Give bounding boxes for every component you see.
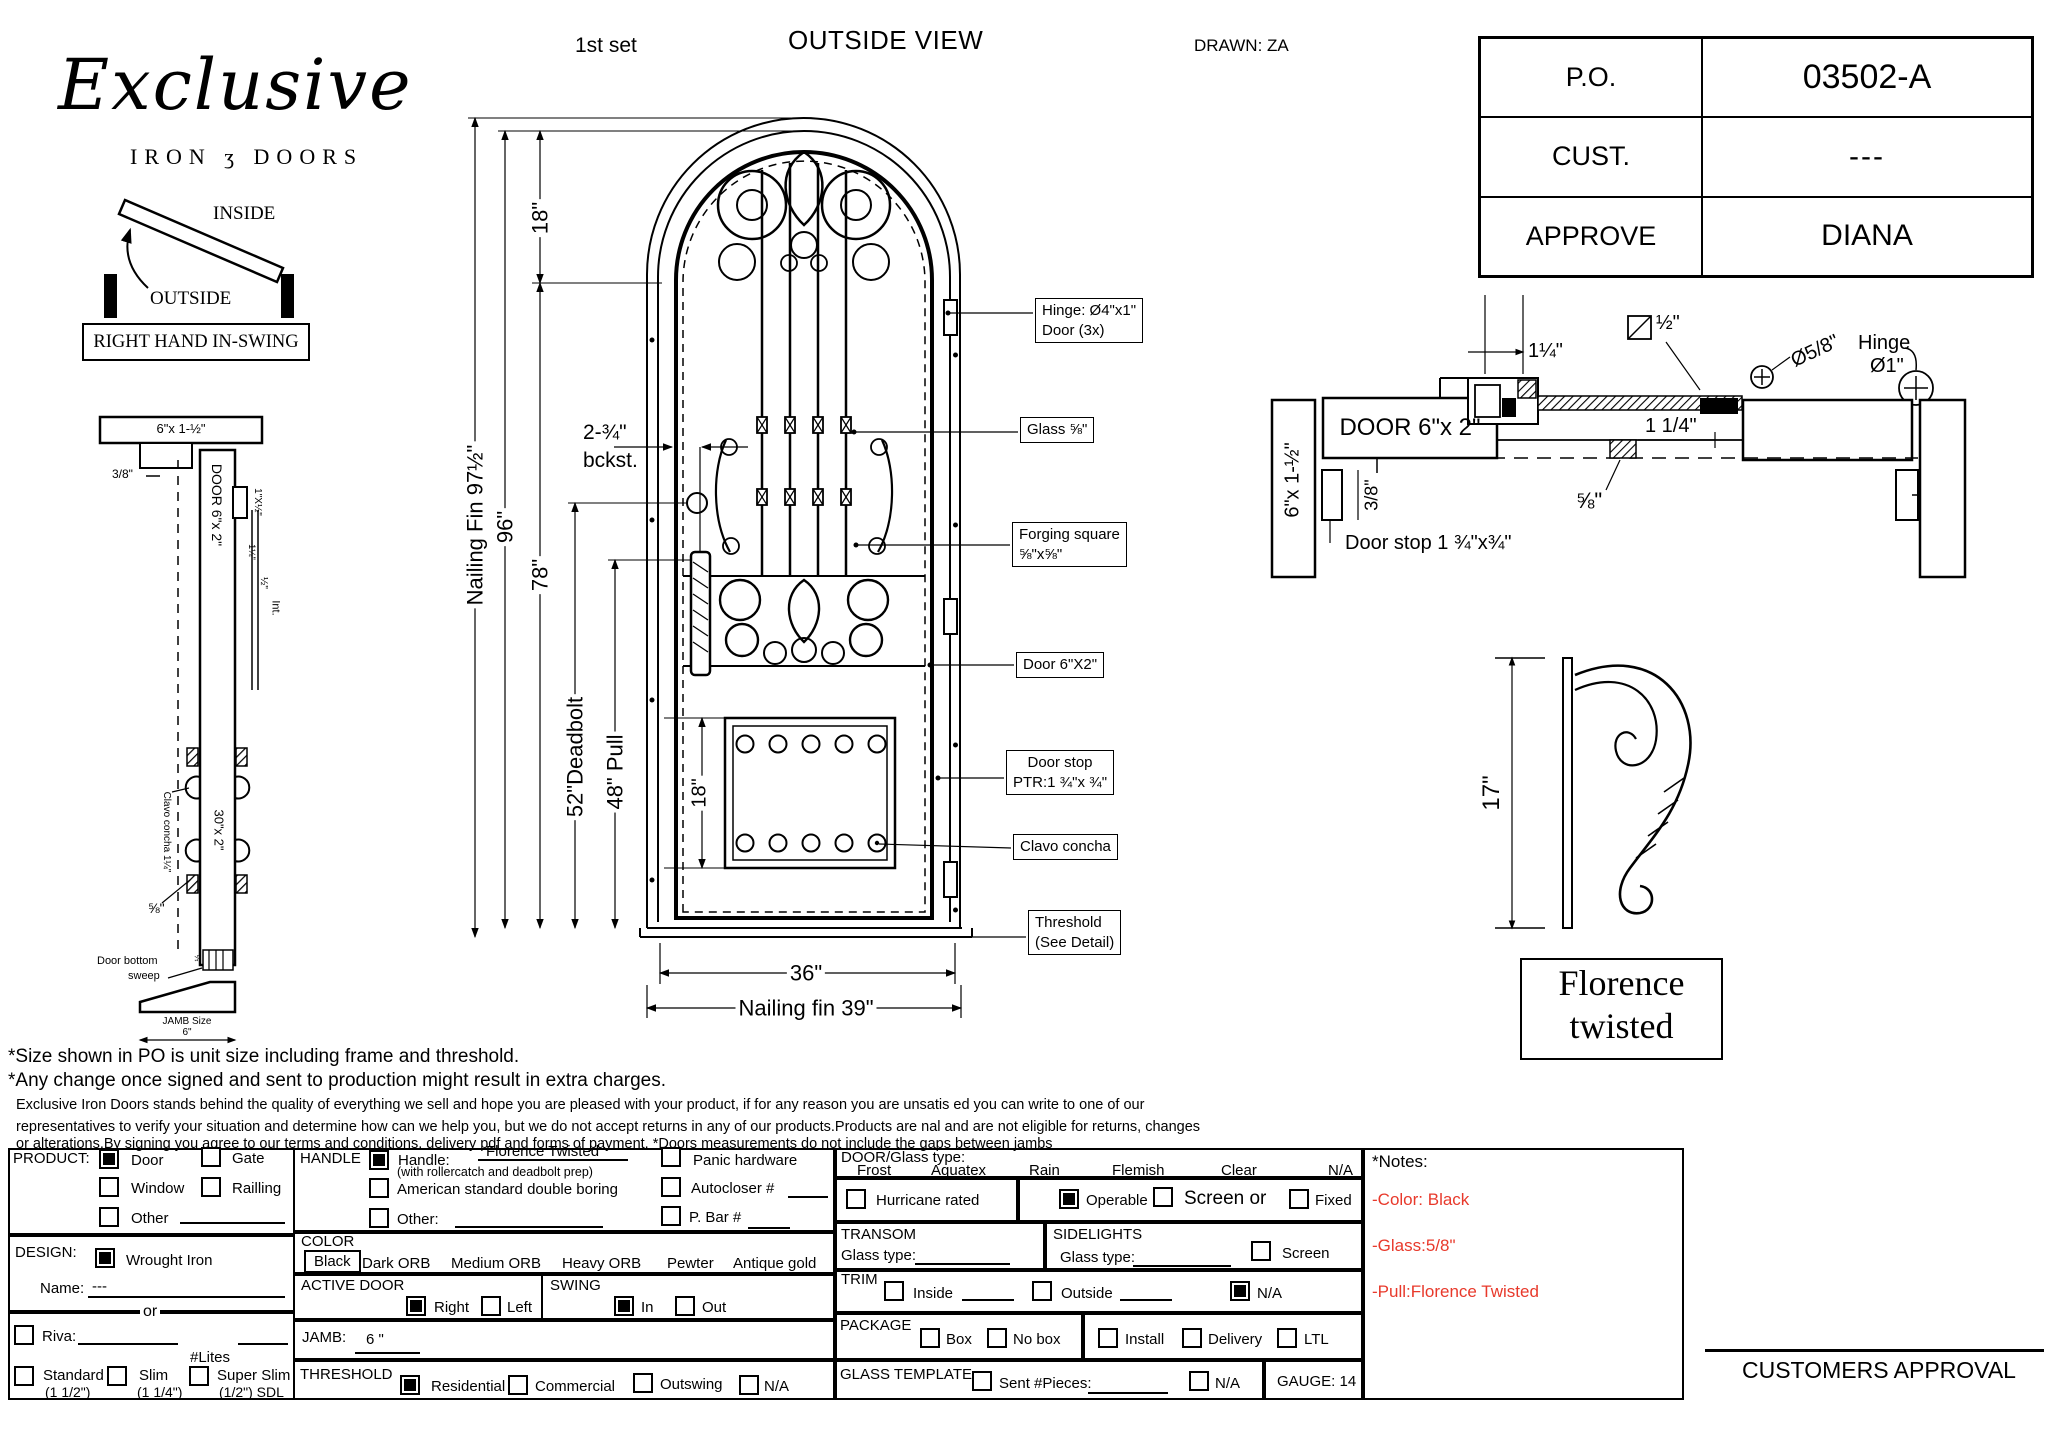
- logo-exclusive: Exclusive: [58, 44, 413, 126]
- product-gate-checkbox[interactable]: [201, 1147, 221, 1167]
- swing-out-label: Out: [702, 1299, 726, 1316]
- superslim-checkbox[interactable]: [189, 1366, 209, 1386]
- design-name-field[interactable]: [88, 1296, 285, 1298]
- jamb-value[interactable]: 6 ": [366, 1331, 384, 1348]
- color-pewter[interactable]: Pewter: [667, 1255, 714, 1272]
- handle-value-field[interactable]: [478, 1159, 628, 1161]
- glass-clear[interactable]: Clear: [1221, 1162, 1257, 1179]
- sweep-half-dim: ½: [193, 955, 202, 962]
- sidelights-glass-label: Glass type:: [1060, 1249, 1135, 1266]
- inside-label: INSIDE: [213, 203, 275, 225]
- swing-label: SWING: [550, 1277, 601, 1294]
- note-color: -Color: Black: [1372, 1190, 1469, 1210]
- trim-label: TRIM: [841, 1271, 878, 1288]
- detail-dim-58: ⅝": [1576, 488, 1602, 513]
- active-right-checkbox[interactable]: [406, 1296, 426, 1316]
- gauge-label: GAUGE: 14: [1277, 1373, 1356, 1390]
- handle-value[interactable]: Florence Twisted: [486, 1143, 599, 1160]
- color-antique-gold[interactable]: Antique gold: [733, 1255, 816, 1272]
- detail-hinge-dia: Ø1": [1870, 355, 1904, 378]
- disclaimer-line2: *Any change once signed and sent to prod…: [8, 1070, 666, 1092]
- product-railing-label: Railling: [232, 1180, 281, 1197]
- detail-hinge-label: Hinge: [1858, 332, 1910, 355]
- set-label: 1st set: [575, 34, 637, 58]
- pull-name-line1: Florence: [1522, 960, 1721, 1007]
- pull-dim-17: 17": [1478, 775, 1506, 810]
- jamb-mid-size: 30"x 2": [211, 809, 226, 850]
- disclaimer-para1: Exclusive Iron Doors stands behind the q…: [16, 1097, 1144, 1114]
- disclaimer-para2: representatives to verify your situation…: [16, 1119, 1200, 1136]
- jamb-gap-dim: 3/8": [112, 468, 133, 482]
- product-other-field[interactable]: [180, 1222, 285, 1224]
- threshold-commercial-label: Commercial: [535, 1378, 615, 1395]
- callout-threshold-line1: Threshold: [1035, 913, 1114, 933]
- dim-backset-label: bckst.: [583, 449, 638, 473]
- american-boring-label: American standard double boring: [397, 1181, 618, 1198]
- american-boring-checkbox[interactable]: [369, 1178, 389, 1198]
- callout-threshold-line2: (See Detail): [1035, 933, 1114, 953]
- package-nobox-checkbox[interactable]: [987, 1328, 1007, 1348]
- dim-nailing-fin-width: Nailing fin 39": [736, 995, 877, 1020]
- glass-template-label: GLASS TEMPLATE: [840, 1366, 972, 1383]
- jamb-clavo-label: Clavo concha 1¼": [160, 792, 172, 873]
- callout-hinge-line2: Door (3x): [1042, 321, 1136, 341]
- dim-18-panel: 18": [689, 775, 712, 810]
- screen-checkbox[interactable]: [1153, 1187, 1173, 1207]
- jamb-field[interactable]: [355, 1352, 420, 1354]
- color-heavy-orb[interactable]: Heavy ORB: [562, 1255, 641, 1272]
- design-name-label: Name:: [40, 1280, 84, 1297]
- threshold-outswing-label: Outswing: [660, 1376, 723, 1393]
- jamb-head-size: 6"x 1-½": [157, 422, 206, 437]
- dim-nailing-fin-height: Nailing Fin 97½": [462, 442, 487, 609]
- notes-box: [1363, 1148, 1684, 1400]
- detail-dim-114: 1¼": [1528, 340, 1563, 363]
- glass-aquatex[interactable]: Aquatex: [931, 1162, 986, 1179]
- swing-in-checkbox[interactable]: [614, 1296, 634, 1316]
- package-delivery-label: Delivery: [1208, 1331, 1262, 1348]
- package-box-label: Box: [946, 1331, 972, 1348]
- threshold-commercial-checkbox[interactable]: [508, 1375, 528, 1395]
- pbar-checkbox[interactable]: [661, 1206, 681, 1226]
- template-na-checkbox[interactable]: [1189, 1371, 1209, 1391]
- riva-label: Riva:: [42, 1328, 76, 1345]
- product-window-label: Window: [131, 1180, 184, 1197]
- riva-field[interactable]: [78, 1343, 178, 1345]
- template-pieces-field[interactable]: [1088, 1392, 1168, 1394]
- active-door-label: ACTIVE DOOR: [301, 1277, 404, 1294]
- callout-forging-square: Forging square ⅝"x⅝": [1012, 522, 1127, 567]
- jamb-size-value: 6": [182, 1027, 191, 1039]
- callout-forge-line1: Forging square: [1019, 525, 1120, 545]
- detail-dim-114b: 1 1/4": [1645, 415, 1697, 438]
- lites-label: #Lites: [190, 1349, 230, 1366]
- dim-backset-value: 2-¾": [583, 421, 627, 445]
- glass-rain[interactable]: Rain: [1029, 1162, 1060, 1179]
- callout-door-size: Door 6"X2": [1016, 652, 1104, 678]
- dim-52-deadbolt: 52"Deadbolt: [562, 694, 587, 820]
- package-nobox-label: No box: [1013, 1331, 1061, 1348]
- autocloser-field[interactable]: [788, 1196, 828, 1198]
- swing-caption: RIGHT HAND IN-SWING: [93, 332, 298, 353]
- trim-na-label: N/A: [1257, 1285, 1282, 1302]
- callout-forge-line2: ⅝"x⅝": [1019, 545, 1120, 565]
- template-sent-checkbox[interactable]: [972, 1371, 992, 1391]
- handle-note: (with rollercatch and deadbolt prep): [397, 1165, 593, 1179]
- package-label: PACKAGE: [840, 1317, 911, 1334]
- package-delivery-checkbox[interactable]: [1182, 1328, 1202, 1348]
- fixed-label: Fixed: [1315, 1192, 1352, 1209]
- jamb-size-label: JAMB Size: [163, 1016, 212, 1028]
- package-ltl-checkbox[interactable]: [1277, 1328, 1297, 1348]
- operable-checkbox[interactable]: [1059, 1189, 1079, 1209]
- notes-label: *Notes:: [1372, 1152, 1428, 1172]
- design-wrought-checkbox[interactable]: [95, 1248, 115, 1268]
- approve-value: DIANA: [1702, 197, 2032, 276]
- detail-door-label: DOOR 6"x 2": [1339, 414, 1480, 442]
- slim-checkbox[interactable]: [107, 1366, 127, 1386]
- swing-in-label: In: [641, 1299, 654, 1316]
- callout-door-stop: Door stop PTR:1 ¾"x ¾": [1006, 750, 1114, 795]
- trim-inside-label: Inside: [913, 1285, 953, 1302]
- pull-detail-drawing: [1478, 648, 1740, 940]
- dim-78: 78": [527, 556, 552, 594]
- handle-other-label: Other:: [397, 1211, 439, 1228]
- package-install-checkbox[interactable]: [1098, 1328, 1118, 1348]
- detail-dim-38: 3/8": [1362, 479, 1383, 510]
- po-value: 03502-A: [1702, 38, 2032, 117]
- threshold-residential-label: Residential: [431, 1378, 505, 1395]
- cust-value: ---: [1702, 117, 2032, 196]
- glass-flemish[interactable]: Flemish: [1112, 1162, 1165, 1179]
- jamb-dim-58: ⅝": [148, 900, 165, 916]
- jamb-dim-12: ½": [257, 577, 269, 589]
- template-na-label: N/A: [1215, 1375, 1240, 1392]
- sidelights-screen-label: Screen: [1282, 1245, 1330, 1262]
- color-dark-orb[interactable]: Dark ORB: [362, 1255, 430, 1272]
- package-ltl-label: LTL: [1304, 1331, 1329, 1348]
- threshold-na-checkbox[interactable]: [739, 1375, 759, 1395]
- transom-label: TRANSOM: [841, 1226, 916, 1243]
- screen-or-label: Screen or: [1184, 1188, 1266, 1210]
- glass-frost[interactable]: Frost: [857, 1162, 891, 1179]
- jamb-section-drawing: [88, 408, 308, 1048]
- note-pull: -Pull:Florence Twisted: [1372, 1282, 1539, 1302]
- callout-threshold: Threshold (See Detail): [1028, 910, 1121, 955]
- approval-signature-line[interactable]: [1705, 1349, 2044, 1352]
- package-install-label: Install: [1125, 1331, 1164, 1348]
- product-window-checkbox[interactable]: [99, 1177, 119, 1197]
- outside-label: OUTSIDE: [150, 288, 231, 310]
- threshold-label: THRESHOLD: [300, 1366, 393, 1383]
- color-black-option[interactable]: Black: [304, 1250, 361, 1273]
- standard-size-label: (1 1/2"): [45, 1384, 90, 1400]
- dim-48-pull: 48" Pull: [602, 731, 627, 812]
- fixed-checkbox[interactable]: [1289, 1189, 1309, 1209]
- product-door-label: Door: [131, 1152, 164, 1169]
- design-or-label: or: [140, 1303, 160, 1321]
- active-left-label: Left: [507, 1299, 532, 1316]
- superslim-size-label: (1/2") SDL: [219, 1384, 284, 1400]
- cust-label: CUST.: [1480, 117, 1702, 196]
- pull-name-box: Florence twisted: [1520, 958, 1723, 1060]
- product-railing-checkbox[interactable]: [201, 1177, 221, 1197]
- swing-out-checkbox[interactable]: [675, 1296, 695, 1316]
- standard-label: Standard: [43, 1367, 104, 1384]
- design-label: DESIGN:: [15, 1244, 77, 1261]
- detail-jamb-size: 6"x 1-½": [1282, 442, 1305, 517]
- dim-18-top: 18": [527, 199, 552, 237]
- sweep-label-1: Door bottom: [97, 955, 158, 968]
- callout-stop-line2: PTR:1 ¾"x ¾": [1013, 773, 1107, 793]
- glass-na[interactable]: N/A: [1328, 1162, 1353, 1179]
- disclaimer-line1: *Size shown in PO is unit size including…: [8, 1046, 519, 1068]
- jamb-dim-114: 1¼": [247, 544, 257, 560]
- detail-dim-12: ½": [1656, 312, 1680, 335]
- note-glass: -Glass:5/8": [1372, 1236, 1456, 1256]
- sidelights-glass-field[interactable]: [1133, 1265, 1231, 1267]
- po-label: P.O.: [1480, 38, 1702, 117]
- color-medium-orb[interactable]: Medium ORB: [451, 1255, 541, 1272]
- swing-caption-box: RIGHT HAND IN-SWING: [82, 323, 310, 361]
- callout-hinge: Hinge: Ø4"x1" Door (3x): [1035, 298, 1143, 343]
- trim-outside-label: Outside: [1061, 1285, 1113, 1302]
- pbar-label: P. Bar #: [689, 1209, 741, 1226]
- panic-label: Panic hardware: [693, 1152, 797, 1169]
- product-other-label: Other: [131, 1210, 169, 1227]
- callout-stop-line1: Door stop: [1013, 753, 1107, 773]
- pull-name-line2: twisted: [1522, 1007, 1721, 1047]
- autocloser-checkbox[interactable]: [661, 1177, 681, 1197]
- product-other-checkbox[interactable]: [99, 1207, 119, 1227]
- jamb-door-size: DOOR 6"x 2": [209, 464, 225, 546]
- handle-other-checkbox[interactable]: [369, 1208, 389, 1228]
- slim-size-label: (1 1/4"): [137, 1384, 182, 1400]
- trim-outside-field[interactable]: [1120, 1299, 1172, 1301]
- sidelights-label: SIDELIGHTS: [1053, 1226, 1142, 1243]
- transom-glass-label: Glass type:: [841, 1247, 916, 1264]
- active-right-label: Right: [434, 1299, 469, 1316]
- color-label: COLOR: [301, 1233, 354, 1250]
- autocloser-label: Autocloser #: [691, 1180, 774, 1197]
- product-label: PRODUCT:: [13, 1150, 90, 1167]
- operable-label: Operable: [1086, 1192, 1148, 1209]
- transom-glass-field[interactable]: [915, 1263, 1010, 1265]
- handle-checkbox[interactable]: [369, 1150, 389, 1170]
- threshold-na-label: N/A: [764, 1378, 789, 1395]
- detail-door-stop: Door stop 1 ¾"x¾": [1345, 532, 1512, 555]
- trim-na-checkbox[interactable]: [1230, 1281, 1250, 1301]
- hurricane-checkbox[interactable]: [846, 1189, 866, 1209]
- product-gate-label: Gate: [232, 1150, 265, 1167]
- dim-36: 36": [787, 960, 825, 985]
- handle-label: HANDLE: [300, 1150, 361, 1167]
- design-name-value[interactable]: ---: [92, 1278, 107, 1295]
- approval-label: CUSTOMERS APPROVAL: [1742, 1357, 2016, 1383]
- design-wrought-label: Wrought Iron: [126, 1252, 212, 1269]
- sidelights-screen-checkbox[interactable]: [1251, 1241, 1271, 1261]
- slim-label: Slim: [139, 1367, 168, 1384]
- jamb-glass-stop: 1"X½": [251, 488, 263, 516]
- po-table: P.O. 03502-A CUST. --- APPROVE DIANA: [1478, 36, 2034, 278]
- jamb-label: JAMB:: [302, 1329, 346, 1346]
- panic-checkbox[interactable]: [661, 1147, 681, 1167]
- trim-inside-field[interactable]: [962, 1299, 1014, 1301]
- riva-field2[interactable]: [238, 1343, 288, 1345]
- pbar-field[interactable]: [748, 1227, 790, 1229]
- superslim-label: Super Slim: [217, 1367, 290, 1384]
- threshold-residential-checkbox[interactable]: [400, 1375, 420, 1395]
- dim-96: 96": [492, 508, 517, 546]
- threshold-outswing-checkbox[interactable]: [633, 1373, 653, 1393]
- trim-outside-checkbox[interactable]: [1032, 1281, 1052, 1301]
- riva-checkbox[interactable]: [14, 1325, 34, 1345]
- handle-other-field[interactable]: [455, 1226, 603, 1228]
- page-title: OUTSIDE VIEW: [788, 26, 983, 56]
- trim-inside-checkbox[interactable]: [884, 1281, 904, 1301]
- callout-clavo-concha: Clavo concha: [1013, 834, 1118, 860]
- package-box-checkbox[interactable]: [920, 1328, 940, 1348]
- sweep-label-2: sweep: [128, 970, 160, 983]
- jamb-int-label: Int.: [269, 600, 282, 615]
- template-sent-label: Sent #Pieces:: [999, 1375, 1092, 1392]
- callout-hinge-line1: Hinge: Ø4"x1": [1042, 301, 1136, 321]
- active-left-checkbox[interactable]: [481, 1296, 501, 1316]
- drawn-by-label: DRAWN: ZA: [1194, 36, 1289, 56]
- approve-label: APPROVE: [1480, 197, 1702, 276]
- standard-checkbox[interactable]: [14, 1366, 34, 1386]
- hurricane-label: Hurricane rated: [876, 1192, 979, 1209]
- callout-glass: Glass ⅝": [1020, 417, 1094, 443]
- drawing-sheet: Exclusive IRON ʒ DOORS 1st set OUTSIDE V…: [0, 0, 2048, 1442]
- product-door-checkbox[interactable]: [99, 1149, 119, 1169]
